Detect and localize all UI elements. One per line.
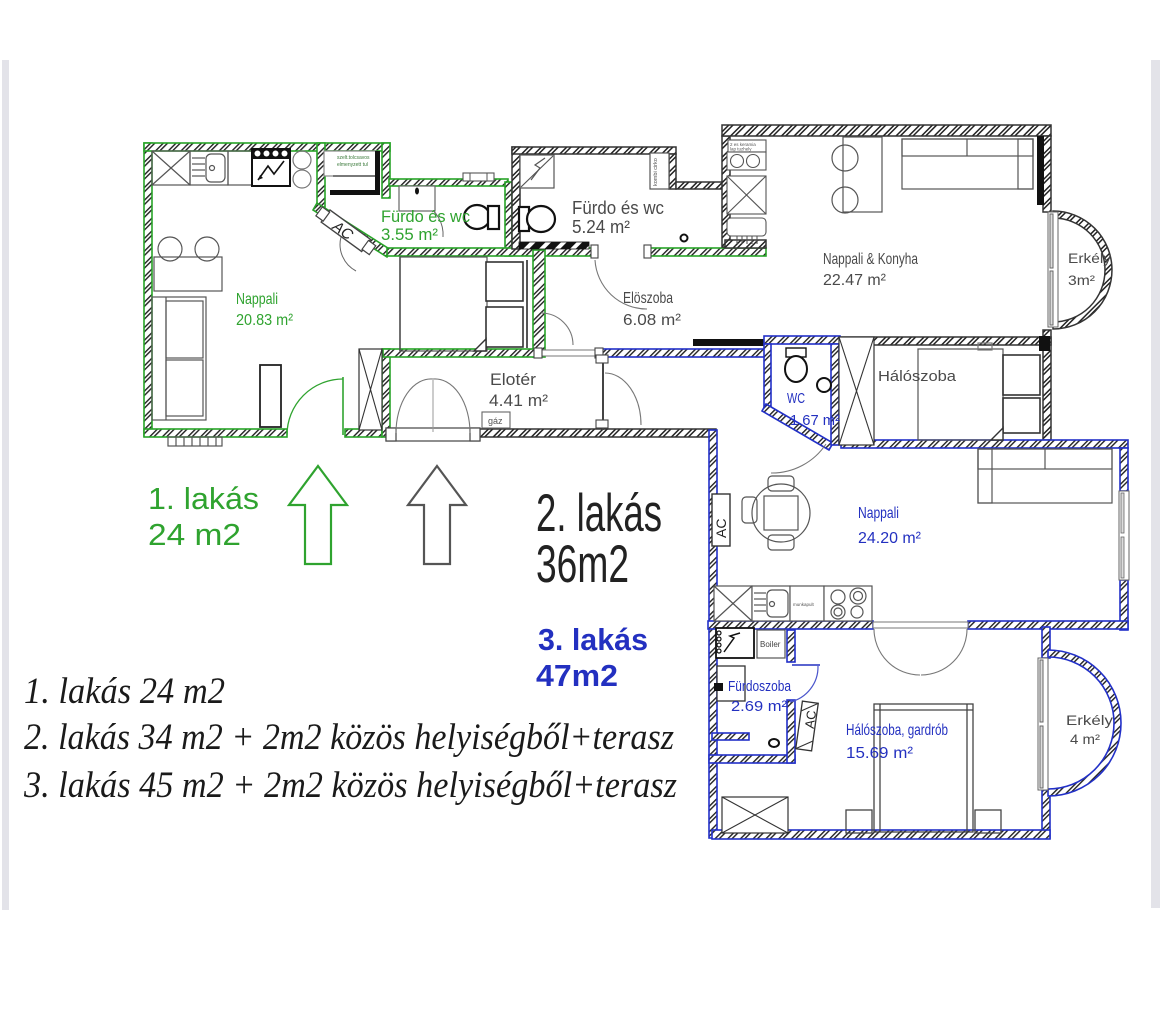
svg-text:AC: AC	[802, 709, 819, 729]
svg-text:15.69 m²: 15.69 m²	[846, 745, 914, 762]
svg-text:20.83 m²: 20.83 m²	[236, 312, 294, 329]
svg-text:Nappali & Konyha: Nappali & Konyha	[823, 251, 918, 268]
svg-text:3. lakás 45 m2 + 2m2 közös hel: 3. lakás 45 m2 + 2m2 közös helyiségből+t…	[23, 765, 677, 806]
svg-text:lap tuzhely: lap tuzhely	[730, 147, 752, 152]
svg-text:Elotér: Elotér	[490, 370, 536, 389]
svg-text:Hálószoba, gardrób: Hálószoba, gardrób	[846, 722, 948, 739]
svg-text:Fürdo és wc: Fürdo és wc	[381, 207, 470, 226]
svg-text:47m2: 47m2	[536, 658, 618, 693]
svg-text:1.67 m²: 1.67 m²	[790, 412, 840, 429]
svg-text:36m2: 36m2	[536, 535, 629, 594]
svg-text:22.47 m²: 22.47 m²	[823, 272, 887, 289]
svg-text:WC: WC	[787, 390, 805, 407]
svg-text:4.41 m²: 4.41 m²	[489, 391, 548, 410]
svg-text:4 m²: 4 m²	[1070, 731, 1100, 747]
svg-text:Fürdo és wc: Fürdo és wc	[572, 198, 664, 218]
svg-text:1. lakás: 1. lakás	[148, 481, 259, 516]
svg-text:kombi cirko: kombi cirko	[653, 158, 659, 186]
svg-text:5.24 m²: 5.24 m²	[572, 217, 630, 237]
svg-text:Erkély: Erkély	[1066, 712, 1113, 728]
svg-text:AC: AC	[713, 519, 729, 538]
svg-text:Boiler: Boiler	[760, 640, 781, 649]
svg-text:szelt.tolcsavos: szelt.tolcsavos	[337, 155, 370, 161]
svg-text:6.08 m²: 6.08 m²	[623, 312, 682, 329]
svg-text:gáz: gáz	[488, 416, 503, 426]
svg-text:Fürdoszoba: Fürdoszoba	[728, 678, 792, 695]
svg-text:24.20 m²: 24.20 m²	[858, 530, 922, 547]
svg-text:Erkély: Erkély	[1068, 250, 1111, 266]
svg-text:2.69 m²: 2.69 m²	[731, 698, 787, 715]
svg-text:Hálószoba: Hálószoba	[878, 368, 957, 385]
svg-text:1. lakás 24 m2: 1. lakás 24 m2	[24, 671, 225, 712]
svg-text:Nappali: Nappali	[858, 505, 899, 522]
svg-text:3. lakás: 3. lakás	[538, 622, 648, 657]
svg-text:elmenyzett tul: elmenyzett tul	[337, 162, 368, 168]
svg-text:2. lakás 34 m2 + 2m2 közös hel: 2. lakás 34 m2 + 2m2 közös helyiségből+t…	[24, 717, 674, 758]
svg-text:Elöszoba: Elöszoba	[623, 290, 673, 307]
svg-text:3m²: 3m²	[1068, 272, 1095, 288]
svg-text:munkapult: munkapult	[793, 602, 815, 607]
svg-text:24 m2: 24 m2	[148, 517, 241, 552]
svg-text:Nappali: Nappali	[236, 291, 278, 308]
svg-text:3.55 m²: 3.55 m²	[381, 225, 438, 244]
